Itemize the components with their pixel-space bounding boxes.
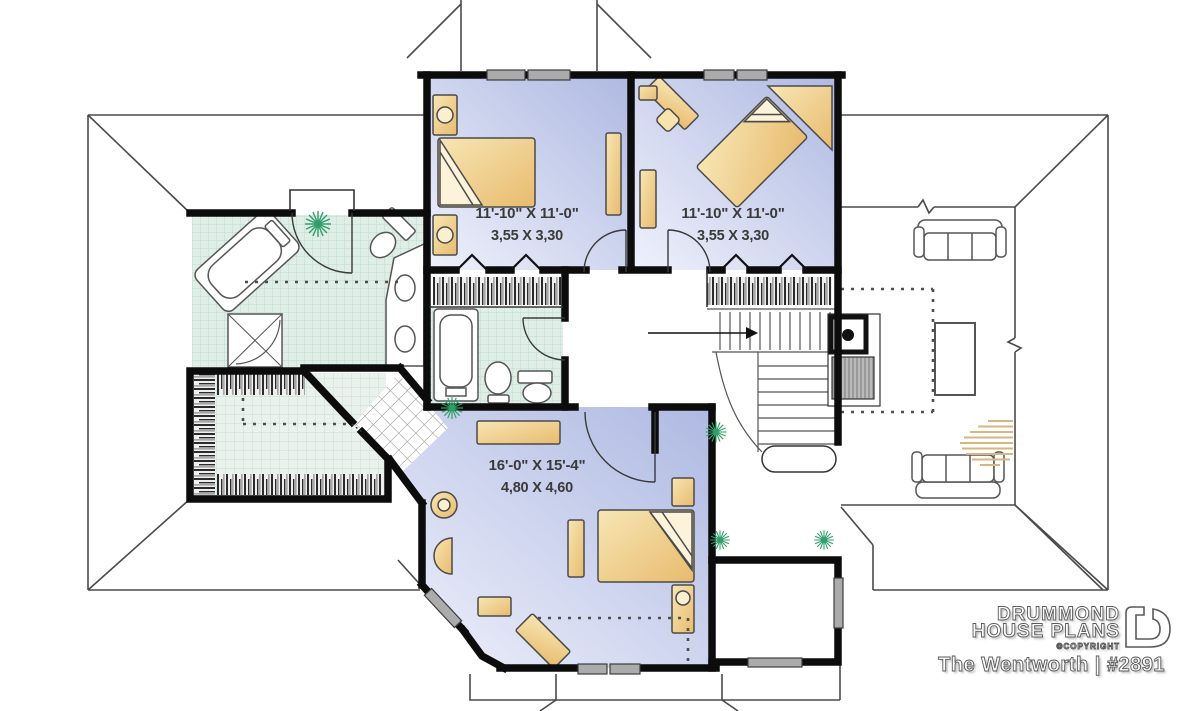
bench-icon [478, 597, 511, 616]
attic-furniture [912, 220, 1013, 498]
pedestal-sink-icon [485, 362, 511, 403]
shelf-icon [639, 86, 657, 100]
lamp-icon [437, 107, 453, 123]
closet-rod [433, 277, 561, 305]
flue-icon [842, 329, 854, 341]
shelf-icon [640, 170, 656, 228]
bench-icon [568, 520, 584, 577]
table-icon [935, 323, 975, 395]
master-dimensions-imperial: 16'-0" X 15'-4" [489, 455, 586, 477]
window-icon [578, 664, 607, 674]
bedroom1-dimensions-metric: 3,55 X 3,30 [475, 225, 578, 247]
bedroom2-dimensions-imperial: 11'-10" X 11'-0" [681, 203, 784, 225]
window-icon [528, 70, 570, 80]
master-dimensions-metric: 4,80 X 4,60 [489, 477, 586, 499]
stair-railing [762, 446, 836, 472]
window-icon [487, 70, 525, 80]
window-icon [748, 658, 802, 667]
sofa-icon [914, 220, 1006, 260]
bedroom2-dimensions-metric: 3,55 X 3,30 [681, 225, 784, 247]
floorplan-page: 11'-10" X 11'-0" 3,55 X 3,30 11'-10" X 1… [0, 0, 1200, 711]
window-icon [737, 70, 767, 80]
lamp-icon [437, 227, 453, 243]
bedroom2-dimensions: 11'-10" X 11'-0" 3,55 X 3,30 [681, 203, 784, 247]
dresser-icon [606, 133, 621, 215]
closet-rod [217, 374, 305, 395]
plan-title: The Wentworth | #2891 [820, 654, 1165, 677]
closet-rod [707, 277, 832, 305]
copyright-label: ©COPYRIGHT [940, 642, 1120, 651]
stair-arrow-icon [746, 327, 758, 339]
window-icon [704, 70, 734, 80]
long-dresser-icon [477, 421, 560, 444]
sink-icon [395, 275, 415, 301]
bathtub-icon [434, 309, 478, 401]
brand-name-line2: HOUSE PLANS [940, 623, 1120, 640]
window-icon [834, 578, 843, 628]
shower-icon [228, 314, 282, 367]
drummond-d-logo-icon [1124, 606, 1174, 650]
nightstand-icon [672, 478, 694, 506]
master-dimensions: 16'-0" X 15'-4" 4,80 X 4,60 [489, 455, 586, 499]
closet-rod [217, 474, 383, 495]
bedroom1-dimensions: 11'-10" X 11'-0" 3,55 X 3,30 [475, 203, 578, 247]
brand-logo: DRUMMOND HOUSE PLANS ©COPYRIGHT [940, 606, 1120, 651]
lamp-icon [676, 591, 690, 605]
window-icon [610, 664, 640, 674]
closet-rod [194, 374, 215, 495]
sink-icon [395, 326, 415, 352]
bedroom1-dimensions-imperial: 11'-10" X 11'-0" [475, 203, 578, 225]
